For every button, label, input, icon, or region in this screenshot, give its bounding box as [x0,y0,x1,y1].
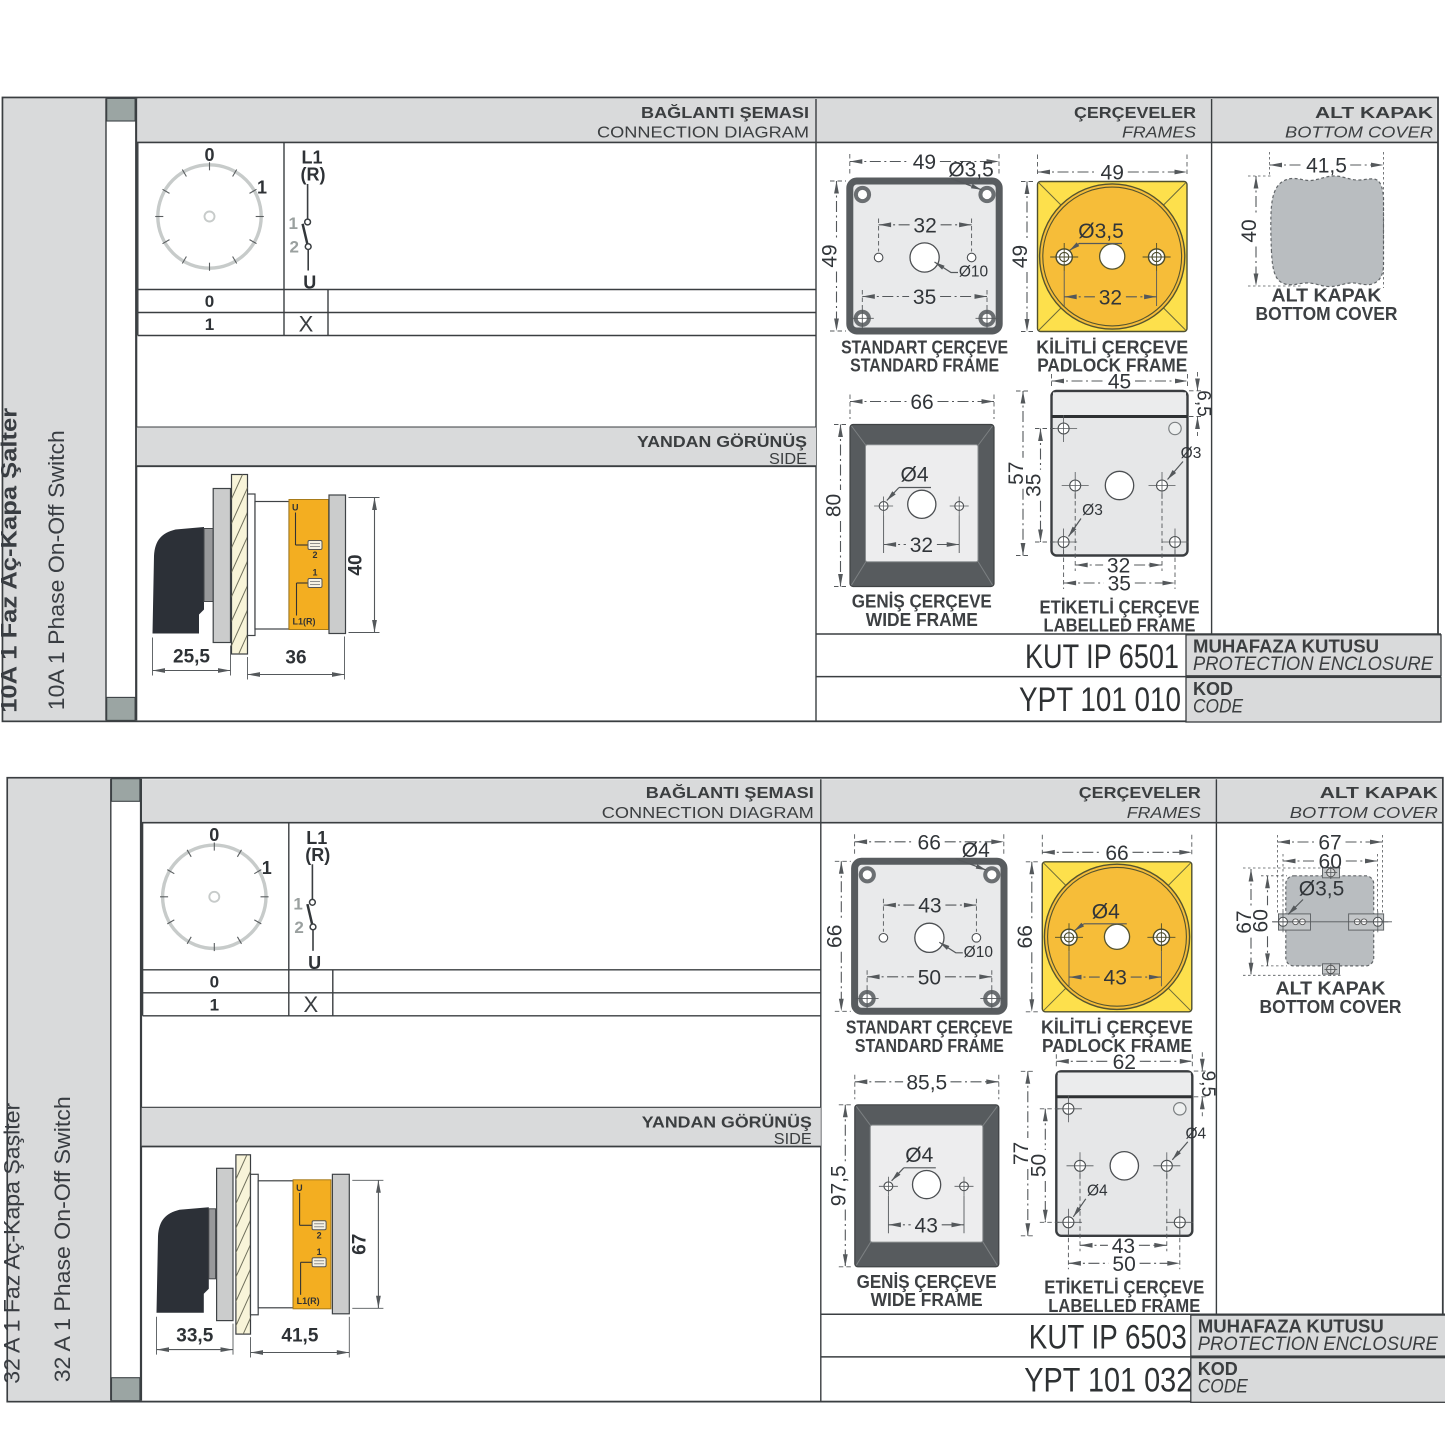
svg-text:(R): (R) [301,165,326,185]
svg-text:45: 45 [1108,371,1131,394]
svg-text:1: 1 [262,858,272,878]
svg-text:SIDE: SIDE [774,1131,812,1148]
svg-text:32 A 1 Faz Aç-Kapa Şaşlter: 32 A 1 Faz Aç-Kapa Şaşlter [0,1103,25,1384]
svg-text:CODE: CODE [1198,1377,1248,1398]
svg-text:62: 62 [1113,1051,1136,1074]
svg-text:32 A 1 Phase On-Off Switch: 32 A 1 Phase On-Off Switch [50,1096,75,1382]
svg-text:10A 1 Faz Aç-Kapa Şalter: 10A 1 Faz Aç-Kapa Şalter [0,407,22,712]
svg-text:32: 32 [910,534,933,557]
svg-text:60: 60 [1319,851,1342,874]
svg-text:BAĞLANTI ŞEMASI: BAĞLANTI ŞEMASI [646,783,814,802]
svg-text:ETİKETLİ ÇERÇEVE: ETİKETLİ ÇERÇEVE [1044,1278,1204,1298]
svg-text:WIDE FRAME: WIDE FRAME [871,1290,983,1310]
svg-text:(R): (R) [305,845,330,865]
svg-text:PROTECTION ENCLOSURE: PROTECTION ENCLOSURE [1198,1334,1438,1355]
svg-text:STANDART ÇERÇEVE: STANDART ÇERÇEVE [841,337,1008,357]
svg-text:Ø3,5: Ø3,5 [1299,878,1345,901]
svg-text:KUT IP 6503: KUT IP 6503 [1029,1318,1187,1356]
svg-text:66: 66 [1105,842,1128,865]
svg-text:6,5: 6,5 [1192,390,1213,416]
svg-text:Ø3,5: Ø3,5 [1078,220,1124,243]
svg-text:X: X [299,312,314,337]
svg-text:66: 66 [823,925,846,948]
svg-text:ÇERÇEVELER: ÇERÇEVELER [1079,785,1201,802]
svg-text:Ø10: Ø10 [964,944,994,961]
svg-text:BOTTOM COVER: BOTTOM COVER [1285,125,1434,142]
svg-text:49: 49 [819,244,842,267]
svg-text:43: 43 [1104,967,1127,990]
svg-text:2: 2 [312,550,317,560]
svg-text:ALT KAPAK: ALT KAPAK [1272,286,1382,306]
svg-text:U: U [303,273,316,293]
svg-text:Ø4: Ø4 [900,464,928,487]
svg-text:L1(R): L1(R) [297,1296,320,1306]
svg-text:STANDARD FRAME: STANDARD FRAME [855,1036,1004,1056]
svg-text:CONNECTION DIAGRAM: CONNECTION DIAGRAM [602,805,814,822]
svg-text:2: 2 [294,918,303,937]
svg-text:41,5: 41,5 [1306,155,1347,178]
svg-text:ALT KAPAK: ALT KAPAK [1276,979,1386,999]
svg-text:35: 35 [1023,474,1046,497]
svg-text:1: 1 [257,178,267,198]
svg-text:Ø4: Ø4 [1092,900,1120,923]
svg-text:40: 40 [1238,219,1261,242]
svg-text:2: 2 [290,238,299,257]
svg-text:Ø4: Ø4 [905,1144,933,1167]
svg-text:41,5: 41,5 [281,1326,318,1347]
svg-text:Ø10: Ø10 [959,264,989,281]
svg-text:0: 0 [205,292,214,311]
svg-text:ALT KAPAK: ALT KAPAK [1320,785,1439,802]
svg-text:1: 1 [205,315,214,334]
svg-text:FRAMES: FRAMES [1127,805,1201,822]
svg-text:YPT 101 010: YPT 101 010 [1019,681,1181,719]
svg-text:10A 1 Phase On-Off Switch: 10A 1 Phase On-Off Switch [44,430,69,710]
svg-text:CODE: CODE [1193,696,1243,717]
svg-text:40: 40 [346,554,367,575]
svg-text:25,5: 25,5 [173,647,210,668]
svg-text:GENİŞ ÇERÇEVE: GENİŞ ÇERÇEVE [857,1272,997,1292]
svg-text:SIDE: SIDE [769,451,807,468]
svg-text:Ø4: Ø4 [962,839,990,862]
svg-text:0: 0 [209,825,219,845]
svg-text:LABELLED FRAME: LABELLED FRAME [1048,1296,1200,1316]
svg-text:L1(R): L1(R) [293,617,316,627]
svg-text:Ø3,5: Ø3,5 [948,159,994,182]
svg-text:YANDAN GÖRÜNÜŞ: YANDAN GÖRÜNÜŞ [642,1112,812,1131]
svg-text:1: 1 [289,214,298,233]
svg-text:50: 50 [1027,1154,1050,1177]
svg-text:2: 2 [317,1230,322,1240]
svg-text:9,5: 9,5 [1197,1071,1218,1097]
svg-text:67: 67 [349,1234,370,1255]
svg-text:PROTECTION ENCLOSURE: PROTECTION ENCLOSURE [1193,654,1433,675]
svg-text:35: 35 [913,286,936,309]
svg-text:32: 32 [913,214,936,237]
svg-text:97,5: 97,5 [827,1165,850,1206]
svg-text:1: 1 [293,894,302,913]
svg-text:ÇERÇEVELER: ÇERÇEVELER [1074,105,1196,122]
svg-text:36: 36 [285,648,306,669]
svg-text:YPT 101 032: YPT 101 032 [1024,1361,1192,1399]
svg-text:Ø3: Ø3 [1181,445,1202,462]
svg-text:BOTTOM COVER: BOTTOM COVER [1260,997,1402,1017]
svg-text:35: 35 [1108,573,1131,596]
svg-text:66: 66 [918,831,941,854]
svg-text:85,5: 85,5 [906,1071,947,1094]
svg-text:50: 50 [1112,1253,1135,1276]
svg-text:X: X [303,992,318,1017]
svg-text:1: 1 [210,995,219,1014]
svg-text:U: U [292,503,299,513]
svg-text:1: 1 [312,568,317,578]
svg-text:BAĞLANTI ŞEMASI: BAĞLANTI ŞEMASI [641,103,809,122]
svg-text:Ø4: Ø4 [1185,1125,1206,1142]
svg-text:43: 43 [915,1214,938,1237]
svg-text:Ø4: Ø4 [1087,1182,1108,1199]
svg-text:66: 66 [1014,925,1037,948]
svg-text:KUT IP 6501: KUT IP 6501 [1025,638,1179,676]
svg-text:32: 32 [1099,286,1122,309]
svg-text:ETİKETLİ ÇERÇEVE: ETİKETLİ ÇERÇEVE [1040,597,1200,617]
svg-text:U: U [296,1183,303,1193]
svg-text:0: 0 [204,145,214,165]
svg-text:43: 43 [918,895,941,918]
svg-text:80: 80 [823,494,846,517]
svg-text:ALT KAPAK: ALT KAPAK [1315,105,1434,122]
svg-text:WIDE FRAME: WIDE FRAME [866,610,978,630]
svg-text:LABELLED FRAME: LABELLED FRAME [1044,616,1196,636]
svg-text:0: 0 [210,972,219,991]
svg-text:GENİŞ ÇERÇEVE: GENİŞ ÇERÇEVE [852,592,992,612]
svg-text:49: 49 [1009,245,1032,268]
svg-text:CONNECTION DIAGRAM: CONNECTION DIAGRAM [597,125,809,142]
svg-text:YANDAN GÖRÜNÜŞ: YANDAN GÖRÜNÜŞ [637,432,807,451]
svg-text:1: 1 [317,1247,322,1257]
svg-text:FRAMES: FRAMES [1122,125,1196,142]
svg-text:Ø3: Ø3 [1082,502,1103,519]
svg-text:33,5: 33,5 [176,1326,213,1347]
svg-text:STANDART ÇERÇEVE: STANDART ÇERÇEVE [846,1018,1013,1038]
svg-text:KİLİTLİ ÇERÇEVE: KİLİTLİ ÇERÇEVE [1041,1018,1193,1038]
svg-text:49: 49 [1101,162,1124,185]
svg-text:50: 50 [918,966,941,989]
svg-text:60: 60 [1250,909,1273,932]
svg-text:KİLİTLİ ÇERÇEVE: KİLİTLİ ÇERÇEVE [1036,337,1188,357]
svg-text:49: 49 [913,151,936,174]
svg-text:BOTTOM COVER: BOTTOM COVER [1290,805,1439,822]
svg-text:U: U [308,953,321,973]
svg-text:BOTTOM COVER: BOTTOM COVER [1256,304,1398,324]
svg-text:STANDARD FRAME: STANDARD FRAME [850,356,999,376]
svg-text:66: 66 [910,391,933,414]
